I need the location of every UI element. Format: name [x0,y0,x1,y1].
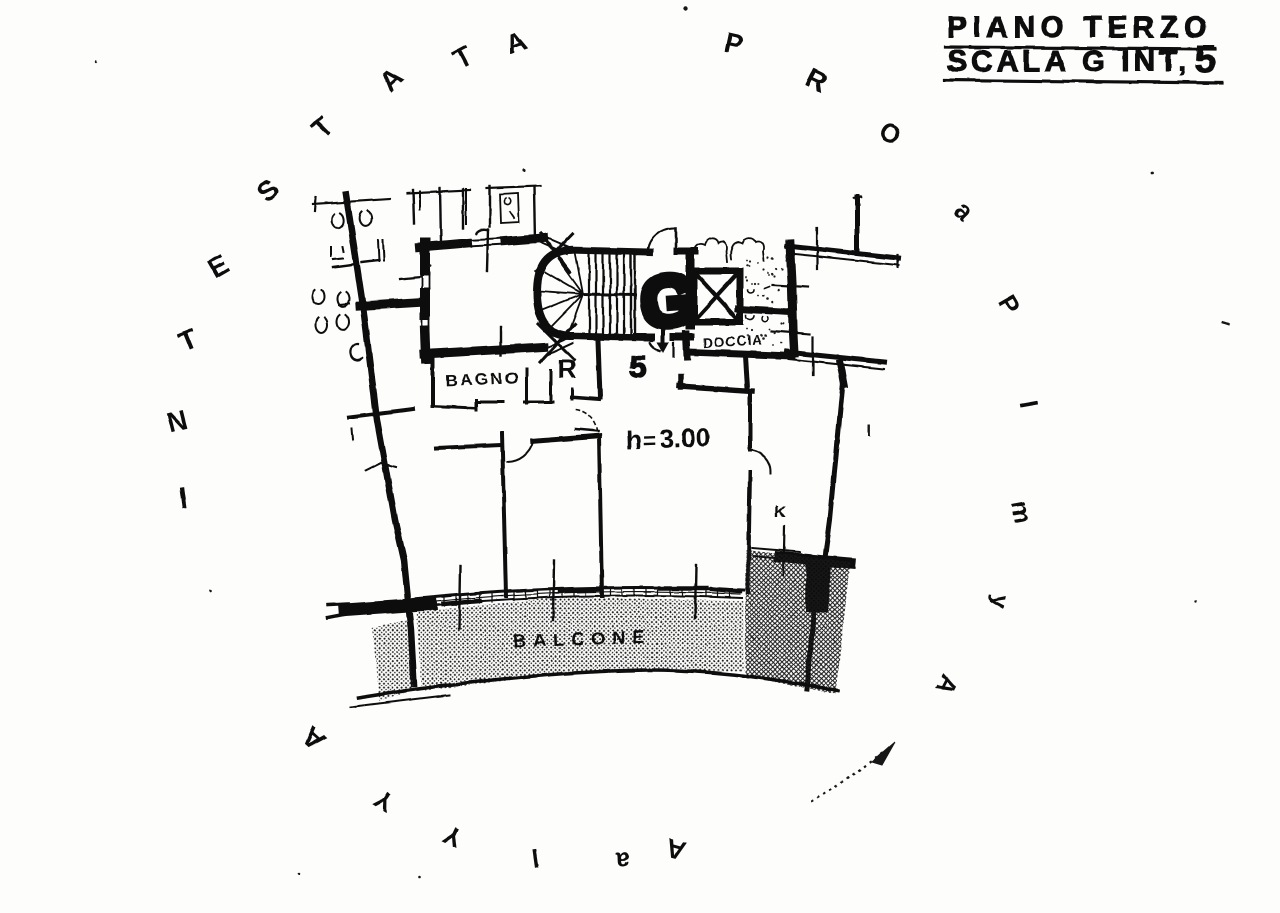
svg-text:5: 5 [629,349,646,384]
svg-text:K: K [774,504,786,521]
svg-text:h=3.00: h=3.00 [625,422,710,455]
svg-text:SCALA G INT,5: SCALA G INT,5 [947,39,1220,81]
svg-text:DOCCIA: DOCCIA [702,331,764,350]
svg-text:PIANO TERZO: PIANO TERZO [947,11,1213,44]
svg-text:BAGNO: BAGNO [445,369,521,391]
svg-text:R: R [558,354,577,384]
svg-text:a: a [614,847,630,876]
